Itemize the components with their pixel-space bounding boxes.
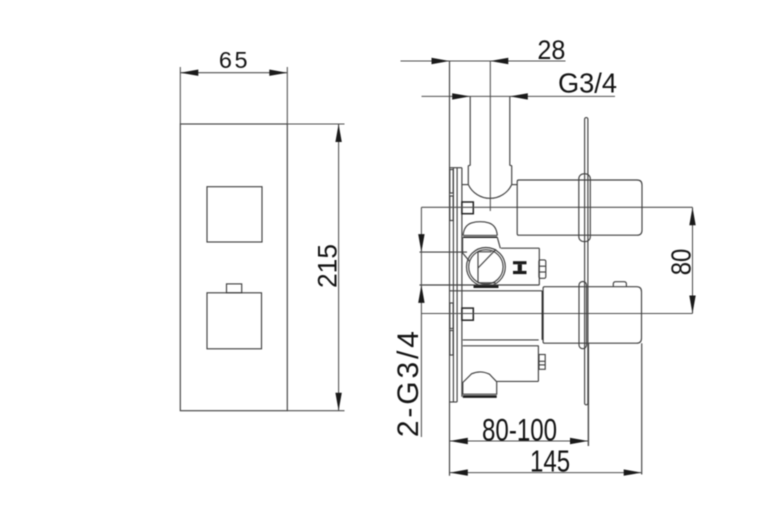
svg-text:80: 80: [666, 249, 697, 276]
svg-text:215: 215: [313, 244, 343, 288]
svg-text:80-100: 80-100: [482, 412, 557, 448]
svg-text:65: 65: [219, 47, 250, 73]
svg-text:145: 145: [530, 444, 570, 479]
svg-text:28: 28: [537, 35, 565, 65]
svg-text:G3/4: G3/4: [558, 67, 617, 98]
svg-text:2-G3/4: 2-G3/4: [392, 331, 425, 437]
